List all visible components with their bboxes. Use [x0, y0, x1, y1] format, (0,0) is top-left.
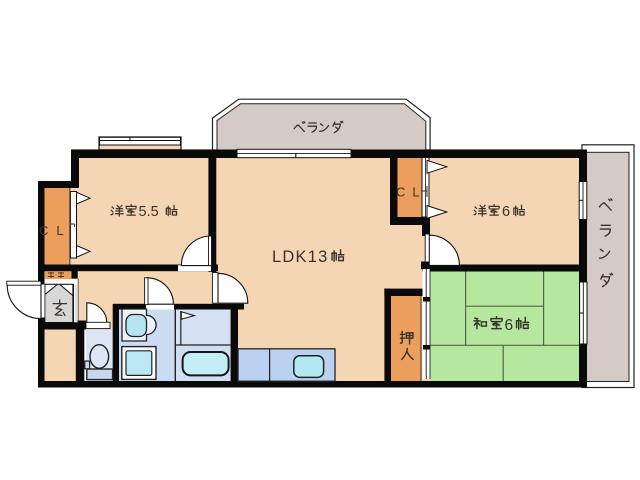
svg-text:LDK13: LDK13: [272, 248, 328, 266]
svg-text:CL: CL: [39, 223, 72, 238]
svg-text:6: 6: [502, 204, 510, 220]
svg-text:6: 6: [505, 317, 514, 334]
svg-text:5.5: 5.5: [139, 204, 159, 220]
svg-text:CL: CL: [396, 185, 427, 200]
